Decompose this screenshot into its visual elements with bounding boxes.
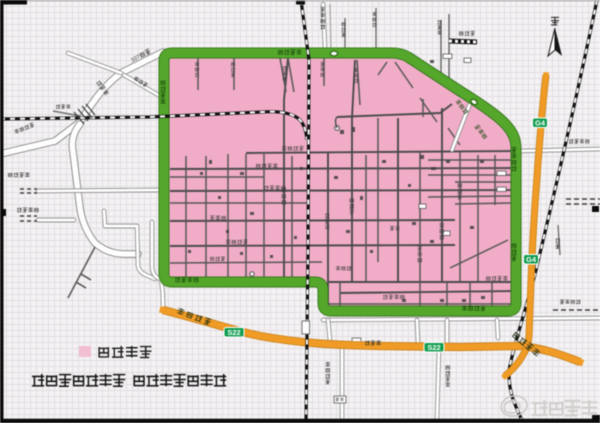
- svg-text:S22: S22: [227, 328, 240, 337]
- svg-text:G4: G4: [526, 255, 537, 264]
- svg-text:S22: S22: [427, 343, 440, 352]
- svg-text:G4: G4: [535, 119, 546, 128]
